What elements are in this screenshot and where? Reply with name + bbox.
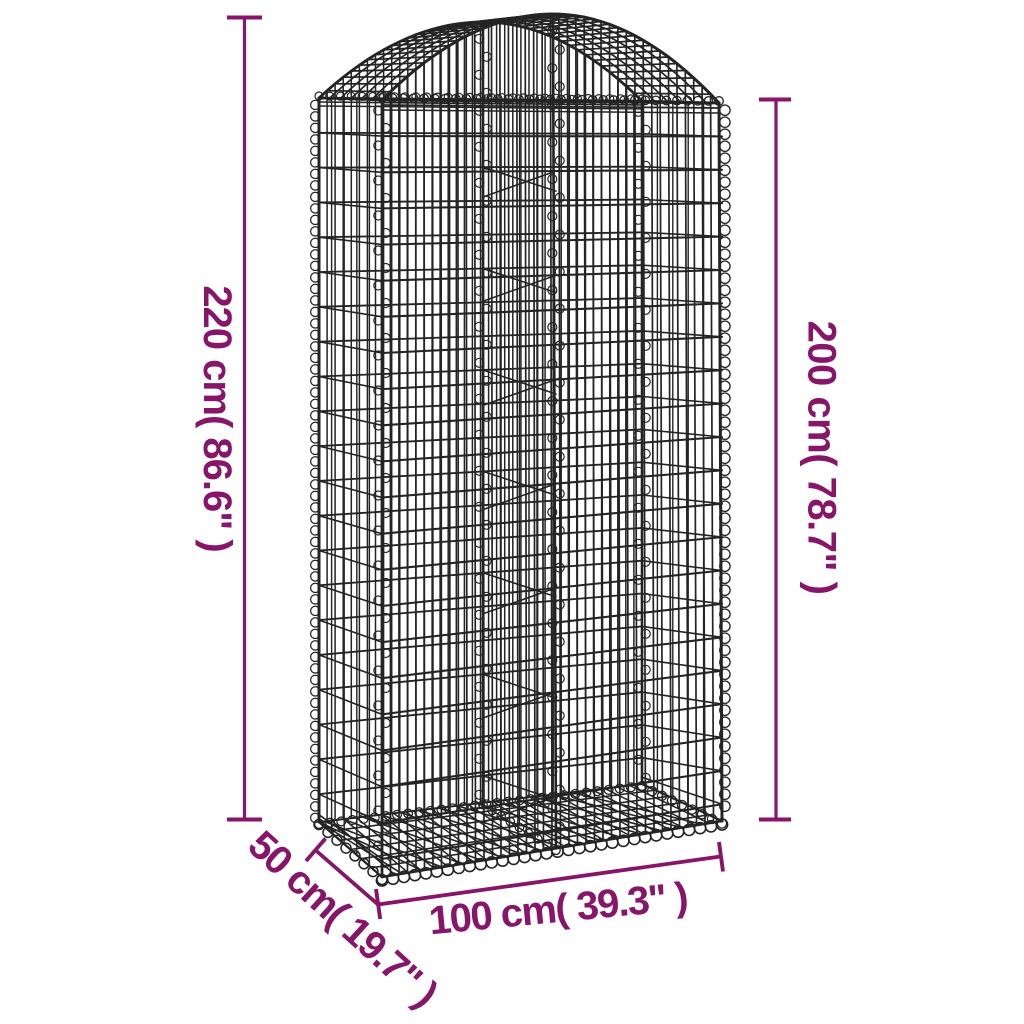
svg-text:200 cm( 78.7" ): 200 cm( 78.7" ) — [800, 321, 844, 595]
svg-text:220 cm( 86.6" ): 220 cm( 86.6" ) — [195, 285, 239, 551]
